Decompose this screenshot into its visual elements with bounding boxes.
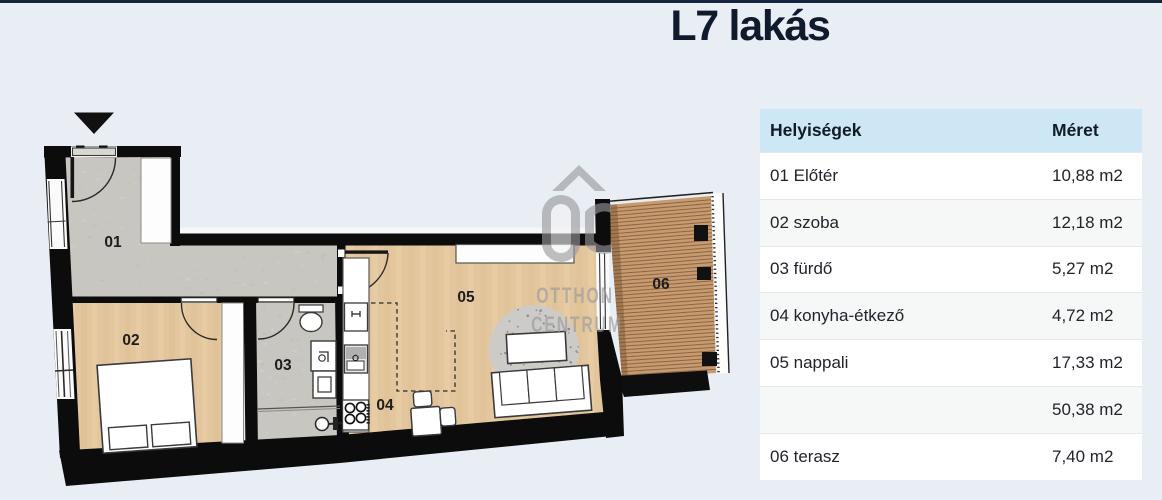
svg-text:CENTRUM: CENTRUM — [531, 314, 623, 338]
svg-text:06: 06 — [652, 276, 670, 293]
svg-text:04: 04 — [376, 397, 394, 414]
svg-text:OTTHON: OTTHON — [536, 285, 614, 309]
svg-text:05: 05 — [457, 289, 475, 306]
svg-text:01: 01 — [104, 234, 122, 251]
svg-text:02: 02 — [122, 332, 139, 349]
svg-text:03: 03 — [274, 357, 292, 374]
